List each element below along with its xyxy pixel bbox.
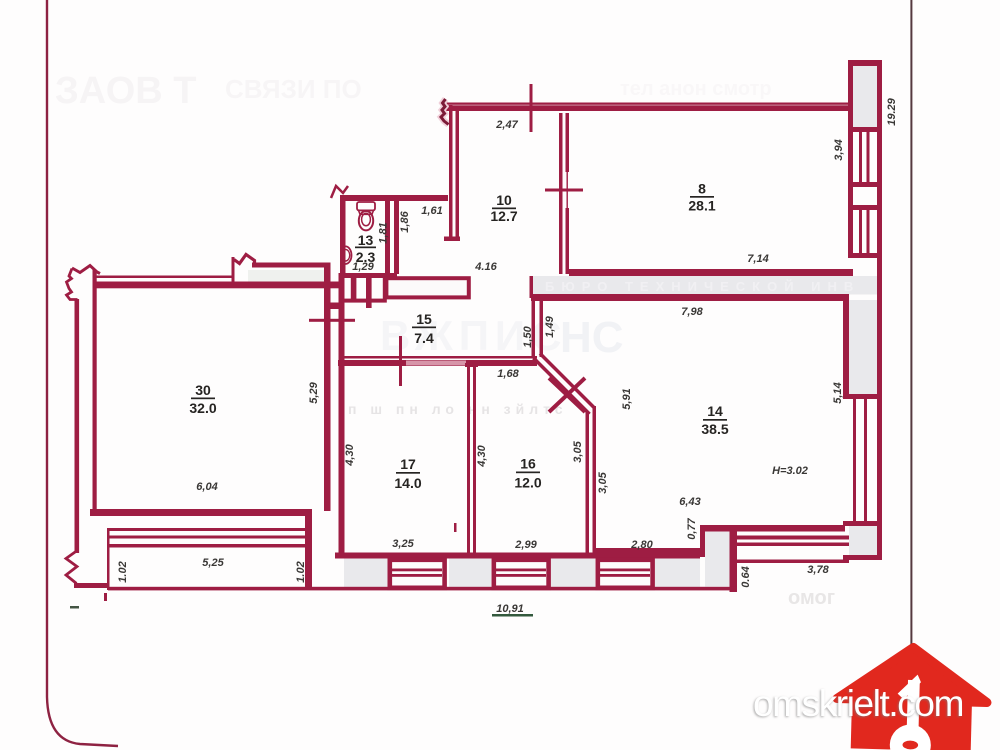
svg-text:2,80: 2,80 [630,539,653,551]
svg-text:6,43: 6,43 [679,496,700,508]
svg-text:13: 13 [358,232,374,248]
svg-text:0.64: 0.64 [740,566,752,587]
svg-text:1,50: 1,50 [522,325,534,347]
svg-text:19.29: 19.29 [886,97,898,125]
svg-text:32.0: 32.0 [189,400,216,416]
svg-text:5,29: 5,29 [308,381,320,403]
svg-text:1,68: 1,68 [497,368,519,380]
svg-text:НС: НС [560,313,624,362]
svg-text:1.02: 1.02 [295,561,307,582]
svg-text:H=3.02: H=3.02 [772,465,808,477]
svg-text:7.4: 7.4 [414,330,434,346]
svg-text:3,78: 3,78 [807,564,829,576]
svg-text:5,25: 5,25 [202,557,224,569]
svg-text:7,14: 7,14 [747,253,768,265]
svg-text:6,04: 6,04 [196,481,217,493]
svg-text:omskrielt.com: omskrielt.com [753,683,963,724]
svg-text:3,05: 3,05 [597,471,609,493]
svg-text:3,25: 3,25 [392,538,414,550]
svg-text:8: 8 [698,181,706,197]
svg-text:1,29: 1,29 [352,261,374,273]
svg-text:1,61: 1,61 [421,205,442,217]
svg-text:ВЖПИС: ВЖПИС [380,312,567,359]
svg-text:16: 16 [520,456,536,472]
svg-text:10: 10 [496,192,512,208]
svg-text:2,47: 2,47 [495,119,518,131]
svg-text:ЗАОВ Т: ЗАОВ Т [55,70,197,112]
svg-text:0,77: 0,77 [686,517,698,539]
svg-text:14: 14 [707,403,723,419]
svg-text:12.7: 12.7 [490,208,517,224]
svg-text:1.02: 1.02 [117,561,129,582]
svg-text:38.5: 38.5 [701,421,728,437]
svg-text:тел анон смотр: тел анон смотр [620,78,772,100]
svg-text:омог: омог [788,587,835,609]
svg-text:30: 30 [195,382,211,398]
svg-text:п ш пн ло нн зйлтс: п ш пн ло нн зйлтс [348,401,568,417]
svg-text:15: 15 [416,311,432,327]
svg-text:1,81: 1,81 [378,222,390,243]
svg-text:14.0: 14.0 [394,475,421,491]
svg-text:17: 17 [400,456,416,472]
svg-text:4,30: 4,30 [476,444,488,467]
svg-text:28.1: 28.1 [688,198,715,214]
svg-text:СВЯЗИ ПО: СВЯЗИ ПО [225,74,362,104]
svg-text:12.0: 12.0 [514,475,541,491]
svg-text:3,05: 3,05 [572,440,584,462]
svg-text:1,86: 1,86 [399,210,411,232]
svg-text:5,91: 5,91 [621,388,633,409]
svg-text:БЮРО ТЕХНИЧЕСКОЙ ИНВ: БЮРО ТЕХНИЧЕСКОЙ ИНВ [545,279,860,294]
svg-text:2,99: 2,99 [514,539,537,551]
svg-text:10,91: 10,91 [496,603,524,615]
svg-text:3,94: 3,94 [833,139,845,160]
svg-text:5,14: 5,14 [832,382,844,403]
svg-text:4.16: 4.16 [474,261,497,273]
svg-text:7,98: 7,98 [681,306,703,318]
svg-text:4,30: 4,30 [344,443,356,466]
svg-text:1,49: 1,49 [544,315,556,337]
